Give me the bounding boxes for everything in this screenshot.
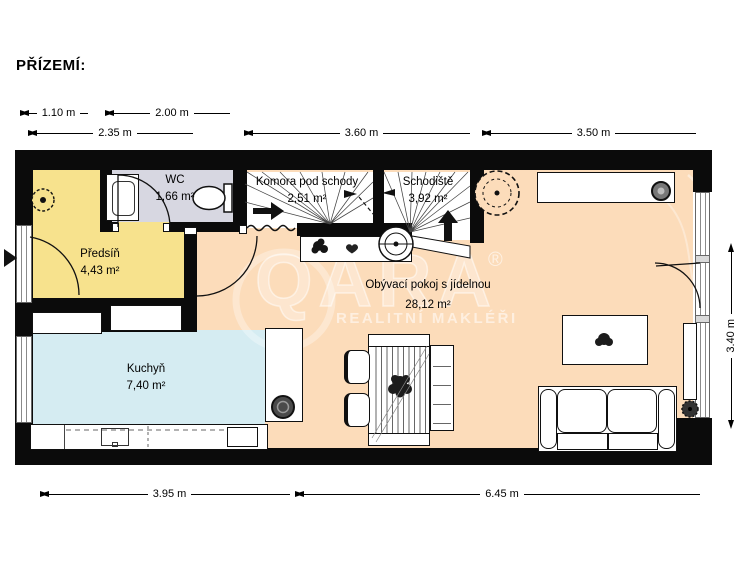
room-area: 2,51 m² bbox=[246, 192, 368, 206]
table-slats bbox=[371, 347, 427, 433]
sofa-arm bbox=[658, 389, 675, 449]
label-storage: Komora pod schody 2,51 m² bbox=[246, 175, 368, 206]
bench bbox=[430, 345, 454, 431]
watermark-tagline: REALITNÍ MAKLÉŘI bbox=[336, 310, 518, 327]
kitchen-tall-cabinet bbox=[265, 328, 303, 422]
entry-door-window-icon bbox=[16, 225, 32, 303]
room-area: 28,12 m² bbox=[352, 298, 504, 312]
arrow-right-icon bbox=[482, 130, 491, 136]
room-area: 4,43 m² bbox=[55, 264, 145, 278]
room-area: 7,40 m² bbox=[103, 379, 189, 393]
floor-plan: PŘÍZEMÍ: 1.10 m 2.00 m 2.35 m 3.60 m 3.5… bbox=[0, 0, 749, 562]
arrow-right-icon bbox=[28, 130, 37, 136]
dimension-label: 6.45 m bbox=[480, 488, 524, 500]
dimension-label: 3.60 m bbox=[340, 127, 384, 139]
sofa-cushion bbox=[557, 389, 607, 433]
door-jamb bbox=[163, 223, 170, 232]
room-name: Obývací pokoj s jídelnou bbox=[365, 279, 490, 291]
hall-cabinet bbox=[110, 305, 182, 331]
room-name: Předsíň bbox=[80, 248, 120, 260]
coffee-table bbox=[562, 315, 648, 365]
room-area: 1,66 m² bbox=[130, 190, 220, 204]
dimension-bottom-1: 3.95 m bbox=[40, 488, 290, 500]
kitchen-window-icon bbox=[16, 336, 32, 423]
wall-top bbox=[15, 150, 712, 170]
wall-storage-bottom bbox=[297, 223, 412, 236]
dimension-top-1: 1.10 m bbox=[20, 107, 88, 119]
console-shelf bbox=[300, 236, 412, 262]
kitchen-counter bbox=[30, 424, 268, 450]
wall-right-bottom bbox=[677, 418, 712, 465]
living-window-icon bbox=[695, 192, 710, 418]
door-jamb bbox=[239, 225, 247, 234]
stove-icon bbox=[227, 427, 258, 447]
arrow-right-icon bbox=[105, 110, 114, 116]
door-jamb bbox=[112, 223, 119, 232]
hall-cabinet bbox=[32, 312, 102, 334]
sofa-seat-rail bbox=[557, 433, 658, 450]
chair bbox=[344, 393, 370, 427]
label-staircase: Schodiště 3,92 m² bbox=[390, 175, 466, 206]
arrow-right-icon bbox=[40, 491, 49, 497]
room-area: 3,92 m² bbox=[390, 192, 466, 206]
room-name: Schodiště bbox=[403, 176, 454, 188]
wall-right-top bbox=[693, 150, 712, 192]
window-mullion bbox=[695, 315, 710, 323]
room-name: Komora pod schody bbox=[256, 176, 358, 188]
sofa-cushion bbox=[607, 389, 657, 433]
page-title: PŘÍZEMÍ: bbox=[16, 57, 86, 74]
radiator bbox=[683, 323, 697, 400]
dimension-top-4: 3.60 m bbox=[244, 127, 470, 139]
dimension-right: 3.40 m bbox=[723, 243, 739, 429]
arrow-right-icon bbox=[295, 491, 304, 497]
door-jamb bbox=[184, 227, 197, 235]
room-name: Kuchyň bbox=[127, 363, 165, 375]
dimension-top-3: 2.35 m bbox=[28, 127, 193, 139]
arrow-down-icon bbox=[728, 420, 734, 429]
dimension-top-2: 2.00 m bbox=[105, 107, 230, 119]
dimension-bottom-2: 6.45 m bbox=[295, 488, 700, 500]
faucet-icon bbox=[112, 442, 118, 447]
wall-wc-right bbox=[233, 150, 247, 232]
arrow-up-icon bbox=[728, 243, 734, 252]
sideboard bbox=[537, 172, 675, 203]
watermark-registered-icon: ® bbox=[488, 249, 503, 272]
sofa-arm bbox=[540, 389, 557, 449]
dimension-label: 3.95 m bbox=[148, 488, 192, 500]
dimension-label: 1.10 m bbox=[37, 107, 81, 119]
dining-table-icon bbox=[368, 334, 430, 446]
dimension-label: 3.40 m bbox=[725, 314, 737, 358]
arrow-right-icon bbox=[244, 130, 253, 136]
room-name: WC bbox=[165, 174, 184, 186]
label-hallway: Předsíň 4,43 m² bbox=[55, 247, 145, 278]
dimension-top-5: 3.50 m bbox=[482, 127, 696, 139]
dimension-label: 3.50 m bbox=[572, 127, 616, 139]
label-kitchen: Kuchyň 7,40 m² bbox=[103, 362, 189, 393]
chair bbox=[344, 350, 370, 384]
arrow-right-icon bbox=[20, 110, 29, 116]
dimension-label: 2.35 m bbox=[93, 127, 137, 139]
label-wc: WC 1,66 m² bbox=[130, 173, 220, 204]
label-living: Obývací pokoj s jídelnou 28,12 m² bbox=[352, 278, 504, 312]
window-mullion bbox=[695, 255, 710, 263]
dimension-label: 2.00 m bbox=[150, 107, 194, 119]
wall-stairs-right bbox=[470, 150, 484, 243]
